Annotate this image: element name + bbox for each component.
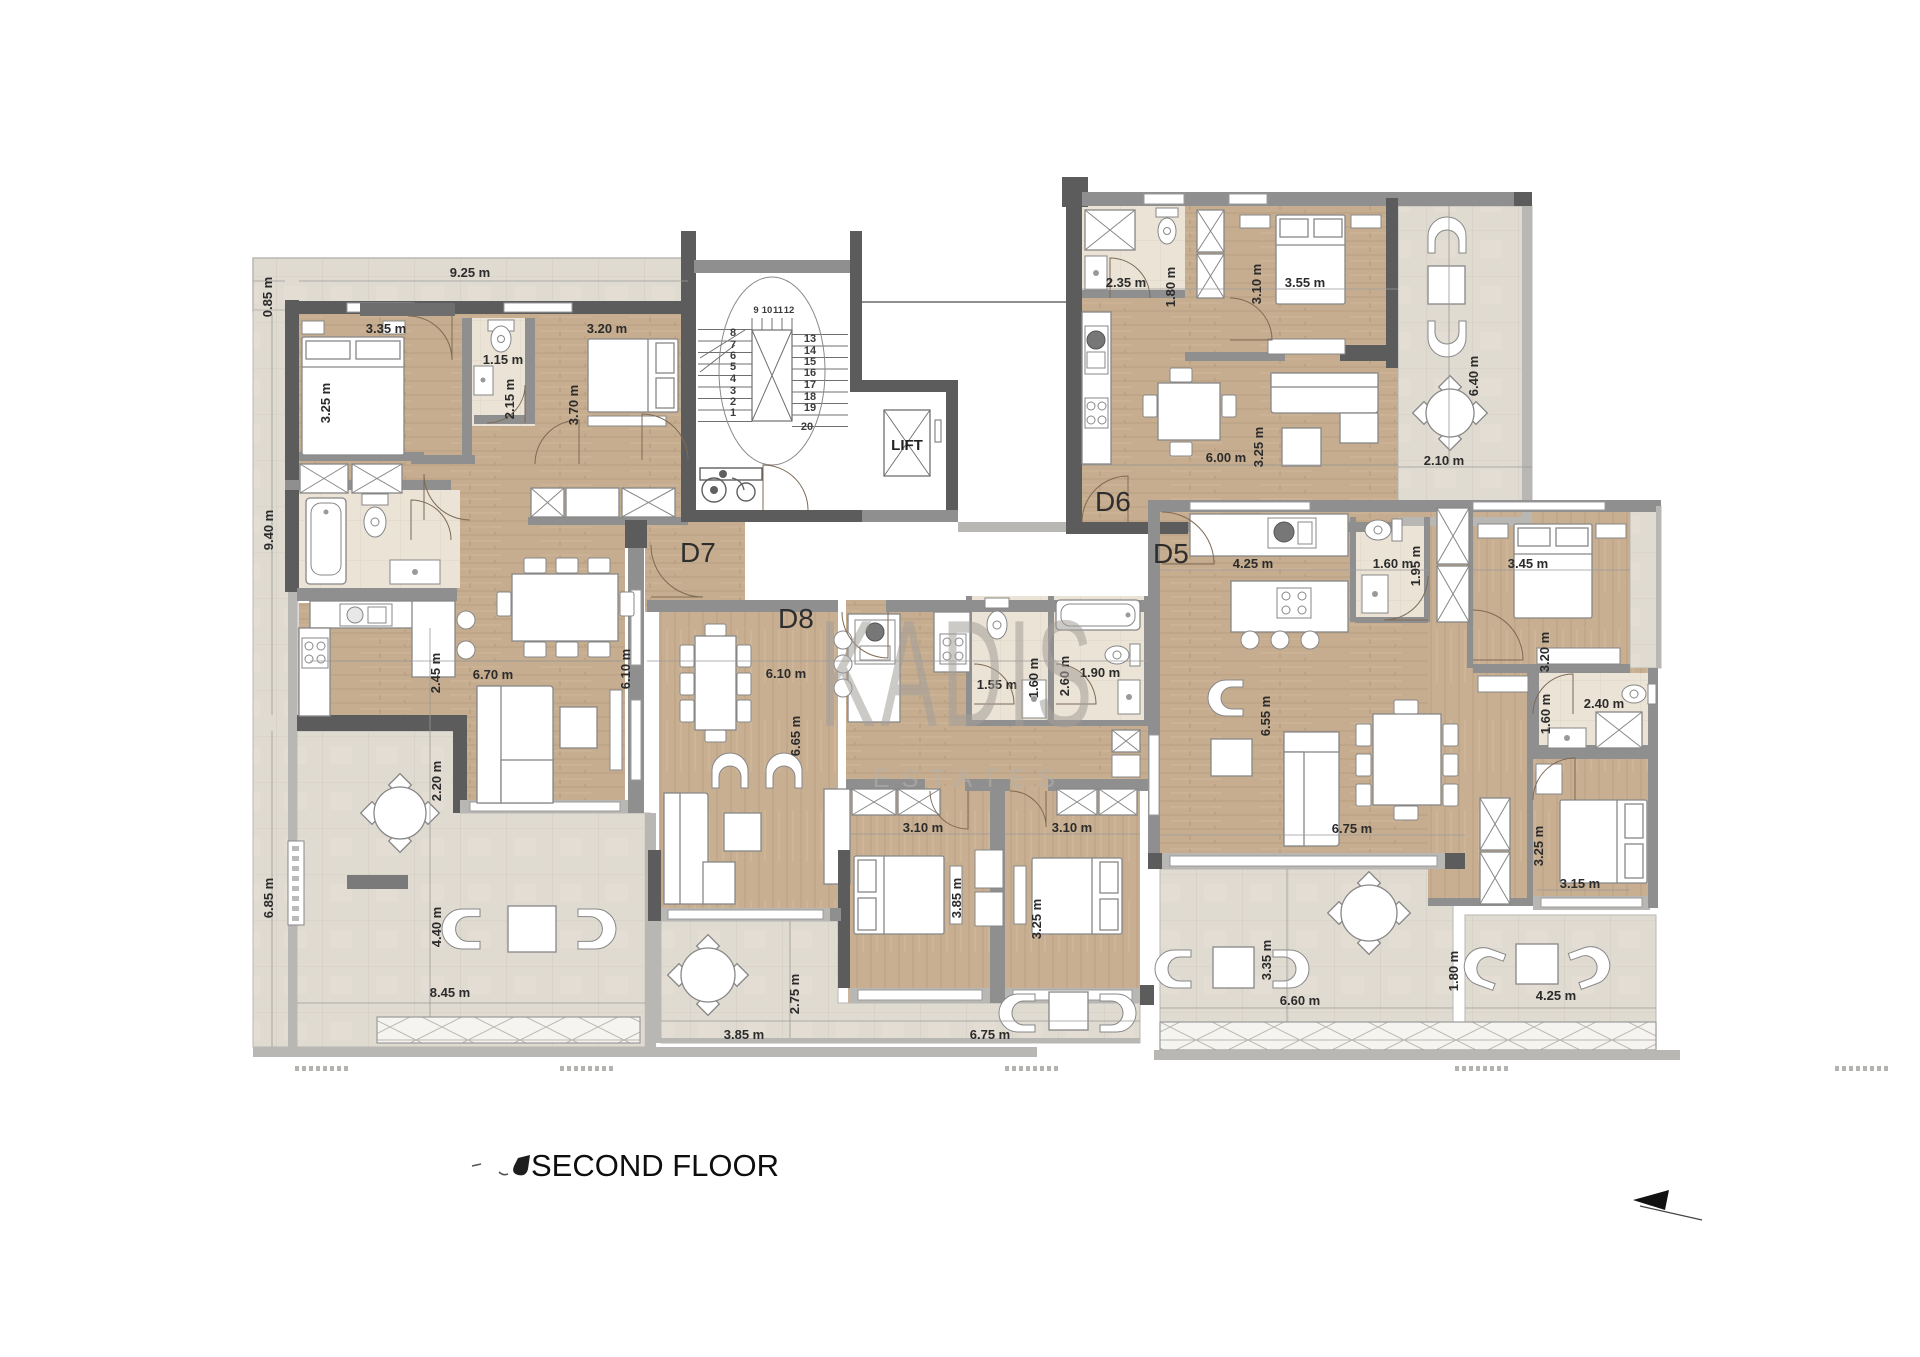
svg-text:3.35 m: 3.35 m bbox=[1259, 940, 1274, 980]
svg-text:2.15 m: 2.15 m bbox=[502, 379, 517, 419]
svg-text:16: 16 bbox=[804, 367, 816, 379]
svg-text:LIFT: LIFT bbox=[891, 437, 923, 454]
svg-text:3.55 m: 3.55 m bbox=[1285, 275, 1325, 290]
svg-text:2.20 m: 2.20 m bbox=[429, 761, 444, 801]
svg-text:1: 1 bbox=[730, 407, 736, 419]
svg-text:6.40 m: 6.40 m bbox=[1466, 356, 1481, 396]
svg-text:D7: D7 bbox=[680, 537, 716, 568]
svg-text:4: 4 bbox=[730, 373, 737, 385]
svg-text:5: 5 bbox=[730, 361, 736, 373]
svg-text:4.25 m: 4.25 m bbox=[1233, 556, 1273, 571]
svg-text:1.15 m: 1.15 m bbox=[483, 352, 523, 367]
svg-text:19: 19 bbox=[804, 402, 816, 414]
svg-text:3.20 m: 3.20 m bbox=[1537, 632, 1552, 672]
svg-text:KADIS: KADIS bbox=[819, 589, 1097, 759]
svg-text:6.65 m: 6.65 m bbox=[788, 716, 803, 756]
svg-text:2.40 m: 2.40 m bbox=[1584, 696, 1624, 711]
svg-text:D8: D8 bbox=[778, 603, 814, 634]
svg-text:8.45 m: 8.45 m bbox=[430, 985, 470, 1000]
svg-text:1.80 m: 1.80 m bbox=[1446, 951, 1461, 991]
svg-text:13: 13 bbox=[804, 333, 816, 345]
svg-text:9.40 m: 9.40 m bbox=[261, 510, 276, 550]
svg-text:2.75 m: 2.75 m bbox=[787, 974, 802, 1014]
svg-text:6.75 m: 6.75 m bbox=[970, 1027, 1010, 1042]
svg-text:11: 11 bbox=[773, 305, 784, 316]
svg-text:8: 8 bbox=[730, 327, 736, 339]
svg-text:9: 9 bbox=[753, 305, 758, 316]
svg-text:6.75 m: 6.75 m bbox=[1332, 821, 1372, 836]
svg-text:6.85 m: 6.85 m bbox=[261, 878, 276, 918]
svg-text:4.25 m: 4.25 m bbox=[1536, 988, 1576, 1003]
svg-text:3.10 m: 3.10 m bbox=[1052, 820, 1092, 835]
svg-text:3.10 m: 3.10 m bbox=[1249, 264, 1264, 304]
svg-text:0.85 m: 0.85 m bbox=[260, 277, 275, 317]
svg-text:6.10 m: 6.10 m bbox=[766, 666, 806, 681]
svg-text:2.35 m: 2.35 m bbox=[1106, 275, 1146, 290]
svg-text:3.15 m: 3.15 m bbox=[1560, 876, 1600, 891]
svg-text:4.40 m: 4.40 m bbox=[429, 907, 444, 947]
svg-text:3.20 m: 3.20 m bbox=[587, 321, 627, 336]
svg-text:17: 17 bbox=[804, 379, 816, 391]
svg-text:3.85 m: 3.85 m bbox=[949, 878, 964, 918]
svg-text:1.80 m: 1.80 m bbox=[1163, 267, 1178, 307]
svg-text:6.10 m: 6.10 m bbox=[618, 649, 633, 689]
svg-text:1.95 m: 1.95 m bbox=[1408, 546, 1423, 586]
svg-text:9.25 m: 9.25 m bbox=[450, 265, 490, 280]
svg-text:3.35 m: 3.35 m bbox=[366, 321, 406, 336]
svg-text:3.25 m: 3.25 m bbox=[1029, 899, 1044, 939]
svg-text:3.85 m: 3.85 m bbox=[724, 1027, 764, 1042]
svg-text:3.25 m: 3.25 m bbox=[1251, 427, 1266, 467]
svg-text:10: 10 bbox=[762, 305, 773, 316]
svg-text:D5: D5 bbox=[1153, 538, 1189, 569]
svg-text:3.25 m: 3.25 m bbox=[318, 383, 333, 423]
svg-text:12: 12 bbox=[784, 305, 795, 316]
svg-text:1.60 m: 1.60 m bbox=[1538, 694, 1553, 734]
svg-text:2.10 m: 2.10 m bbox=[1424, 453, 1464, 468]
svg-text:3.25 m: 3.25 m bbox=[1531, 826, 1546, 866]
svg-text:SECOND FLOOR: SECOND FLOOR bbox=[531, 1148, 779, 1183]
svg-text:3.45 m: 3.45 m bbox=[1508, 556, 1548, 571]
svg-text:ESTATES: ESTATES bbox=[873, 765, 1067, 793]
svg-text:3.10 m: 3.10 m bbox=[903, 820, 943, 835]
svg-text:3.70 m: 3.70 m bbox=[566, 385, 581, 425]
svg-text:6.60 m: 6.60 m bbox=[1280, 993, 1320, 1008]
svg-text:2.45 m: 2.45 m bbox=[428, 653, 443, 693]
svg-text:20: 20 bbox=[801, 421, 813, 433]
svg-text:6.00 m: 6.00 m bbox=[1206, 450, 1246, 465]
svg-text:D6: D6 bbox=[1095, 486, 1131, 517]
svg-text:6.55 m: 6.55 m bbox=[1258, 696, 1273, 736]
svg-text:6.70 m: 6.70 m bbox=[473, 667, 513, 682]
